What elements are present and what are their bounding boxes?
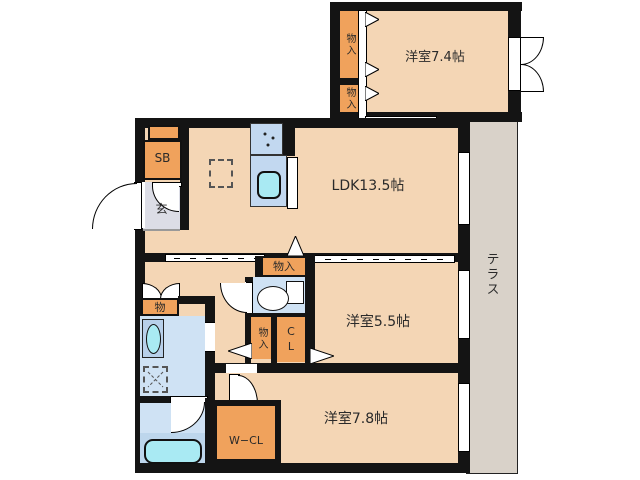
window — [458, 270, 470, 339]
closet-upper-a-label: 物入 — [340, 22, 358, 68]
window — [458, 152, 470, 225]
closet-toilet-top-label: 物入 — [263, 260, 305, 273]
washing-machine-icon — [143, 366, 168, 393]
closet-hall-lower-label: 物入 — [251, 320, 271, 358]
sliding-door — [313, 255, 455, 263]
shoe-box-small — [148, 125, 180, 140]
door-arc — [92, 183, 137, 229]
west78-door-opening — [226, 364, 257, 373]
door-direction-icon — [228, 343, 252, 359]
door-direction-icon — [310, 348, 334, 364]
sliding-door — [165, 254, 265, 262]
washroom-door-opening — [205, 322, 215, 352]
door-direction-icon — [365, 86, 379, 101]
door-arc — [521, 64, 544, 92]
kitchen-end-panel — [287, 157, 298, 209]
wcl-label: W−CL — [217, 433, 275, 447]
west78-label: 洋室7.8帖 — [308, 410, 404, 428]
main-wall-bottom — [135, 463, 470, 473]
west55-label: 洋室5.5帖 — [330, 313, 426, 331]
closet-divider — [338, 78, 358, 85]
ldk-label: LDK13.5帖 — [320, 177, 416, 195]
closet-upper-b-label: 物入 — [340, 86, 358, 112]
toilet-icon — [257, 286, 289, 311]
kitchen-wall — [283, 121, 295, 156]
washbasin-icon — [142, 319, 164, 358]
bathtub-icon — [144, 439, 202, 464]
entrance-label: 玄 — [145, 202, 178, 216]
west74-wall-left — [330, 2, 340, 122]
window — [508, 37, 521, 91]
sink-icon — [257, 171, 281, 199]
door-direction-icon — [287, 236, 304, 256]
west74-label: 洋室7.4帖 — [380, 48, 490, 66]
shoe-box-label: SB — [143, 150, 182, 166]
window — [458, 383, 470, 452]
stove-icon — [250, 123, 283, 155]
door-direction-icon — [365, 62, 379, 77]
toilet-door-panel — [246, 282, 253, 315]
door-arc — [521, 37, 544, 65]
door-direction-icon — [365, 12, 379, 27]
floor-plan: テラス 物入 物入 洋室7.4帖 SB 玄 — [0, 0, 640, 480]
terrace-label: テラス — [478, 232, 504, 316]
closet-mono-label: 物 — [141, 301, 179, 314]
refrigerator-icon — [209, 159, 233, 188]
closet-cl-label: CL — [277, 322, 305, 358]
